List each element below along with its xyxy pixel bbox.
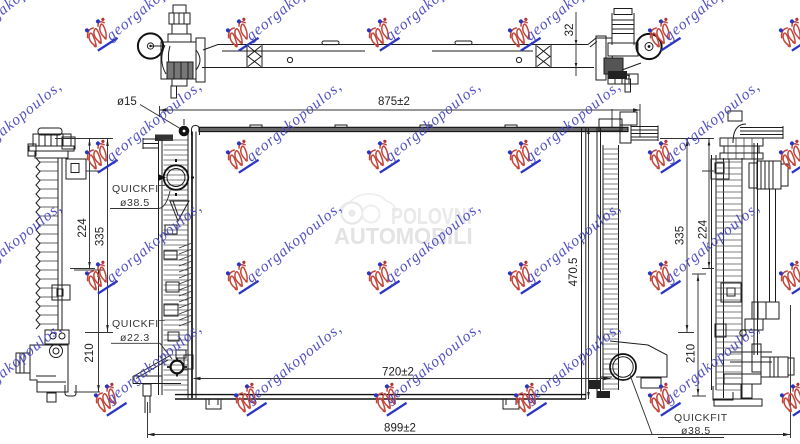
svg-text:QUICKFIT: QUICKFIT [112, 183, 166, 195]
svg-text:875±2: 875±2 [378, 96, 410, 108]
svg-text:335: 335 [675, 226, 687, 245]
svg-text:ø38.5: ø38.5 [681, 425, 711, 437]
svg-text:ø22.3: ø22.3 [120, 332, 150, 344]
svg-text:ø38.5: ø38.5 [120, 197, 150, 209]
svg-text:470.5: 470.5 [568, 258, 580, 287]
svg-text:QUICKFIT: QUICKFIT [674, 412, 728, 424]
svg-text:ø15: ø15 [117, 96, 137, 108]
svg-text:210: 210 [84, 343, 96, 362]
svg-text:335: 335 [95, 227, 107, 246]
svg-text:32: 32 [564, 24, 576, 37]
svg-text:224: 224 [77, 218, 89, 238]
svg-text:899±2: 899±2 [384, 423, 416, 435]
svg-text:QUICKFIT: QUICKFIT [112, 318, 166, 330]
svg-text:210: 210 [686, 344, 698, 363]
